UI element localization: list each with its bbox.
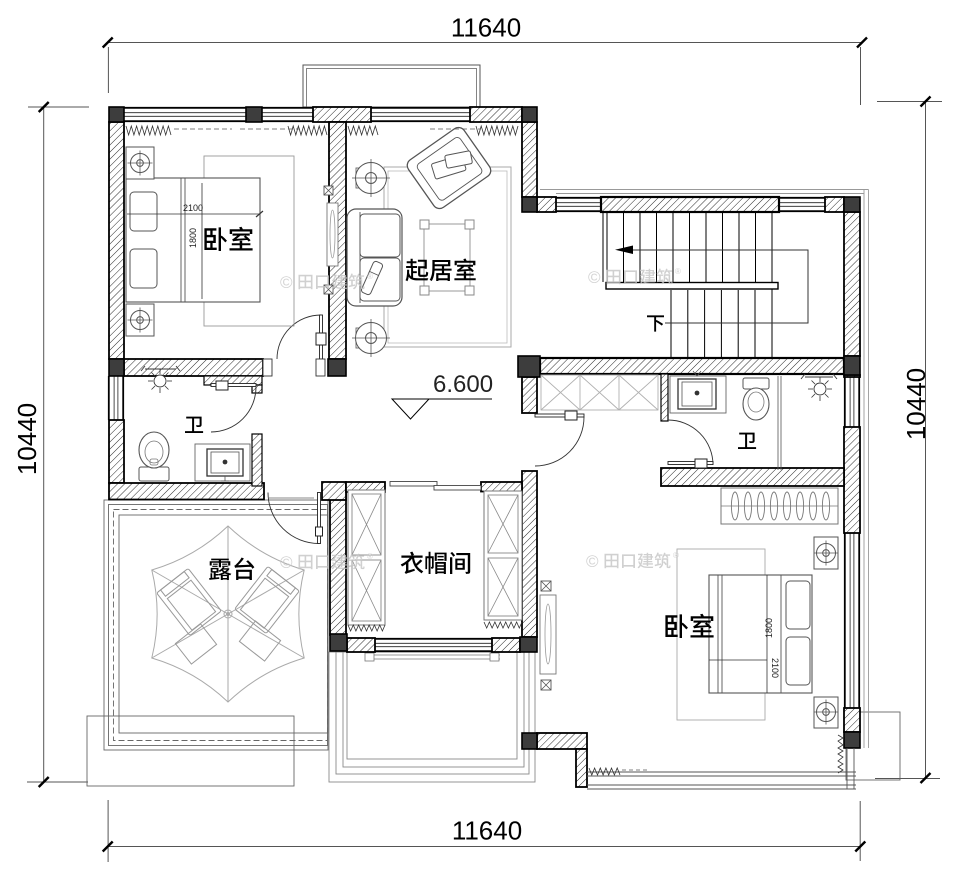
svg-text:1800: 1800 [764, 618, 774, 638]
svg-text:®: ® [367, 272, 373, 281]
svg-text:6.600: 6.600 [433, 371, 493, 398]
svg-text:1800: 1800 [188, 228, 198, 248]
svg-text:©: © [280, 553, 293, 572]
svg-text:®: ® [675, 267, 681, 276]
svg-text:2100: 2100 [183, 203, 203, 213]
svg-text:©: © [586, 552, 599, 571]
svg-text:11640: 11640 [451, 13, 521, 43]
svg-text:®: ® [673, 551, 679, 560]
svg-text:©: © [588, 268, 601, 287]
svg-text:®: ® [367, 552, 373, 561]
svg-text:©: © [280, 273, 293, 292]
svg-text:10440: 10440 [901, 368, 931, 440]
svg-text:10440: 10440 [12, 403, 42, 475]
svg-text:2100: 2100 [770, 658, 780, 678]
svg-text:11640: 11640 [452, 816, 522, 846]
